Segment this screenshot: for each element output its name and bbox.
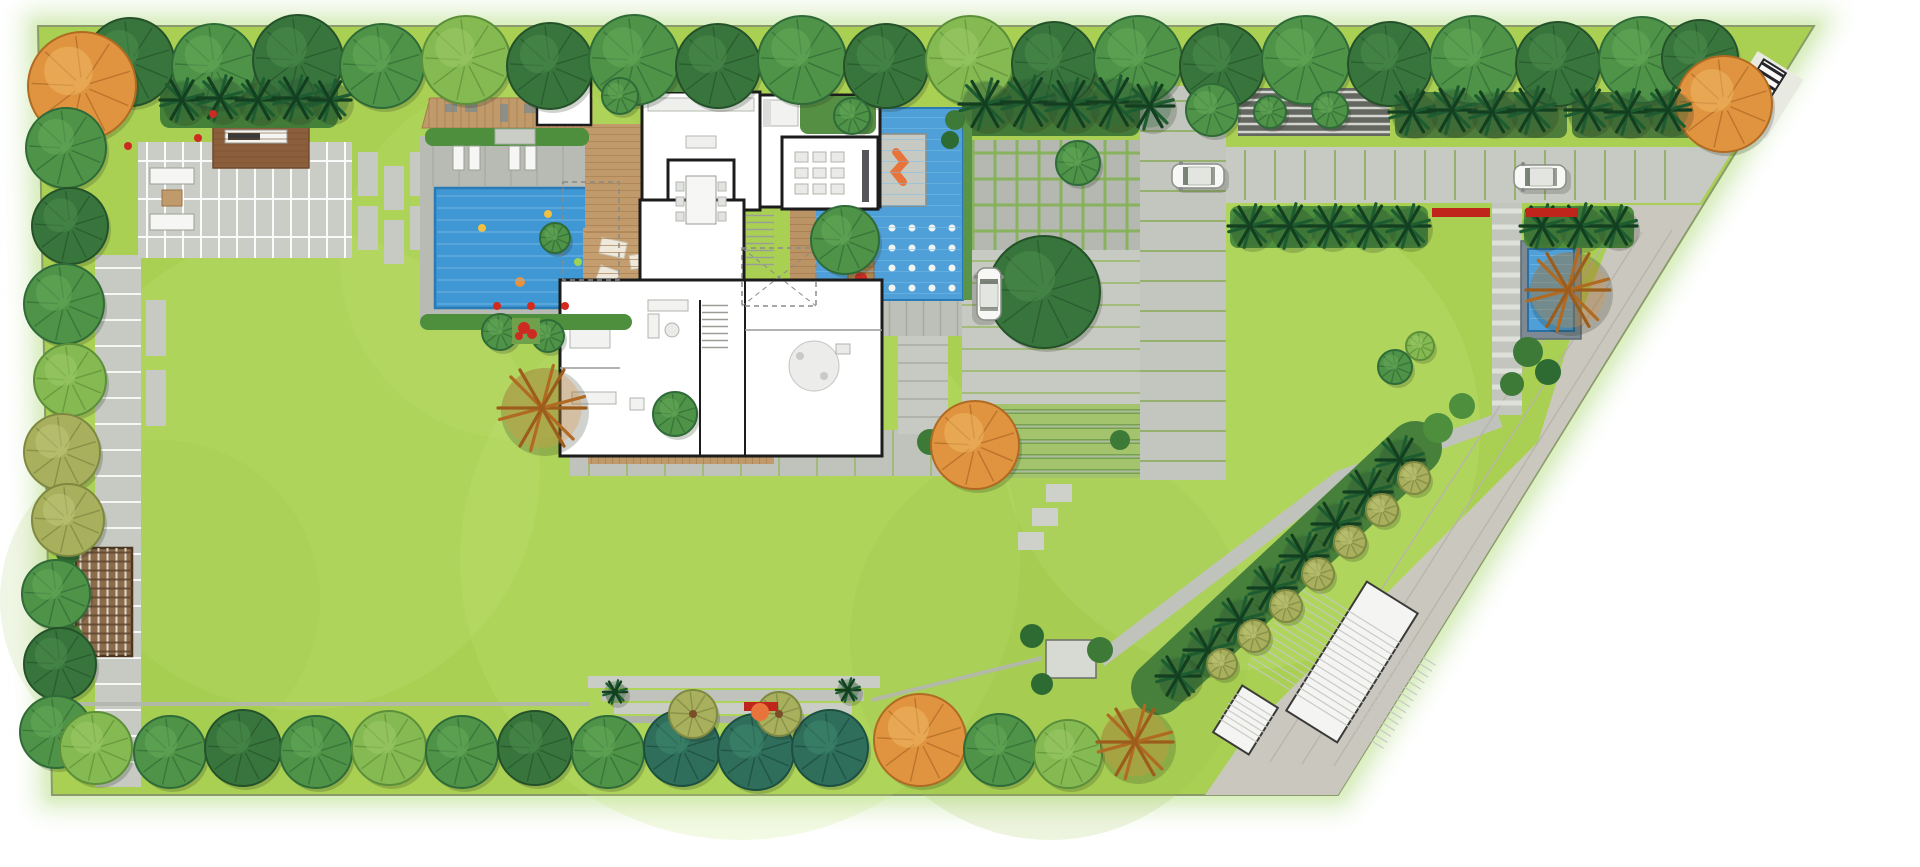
- chair: [676, 212, 684, 221]
- paving: [146, 370, 166, 426]
- shrub: [1535, 359, 1561, 385]
- stepping-stone: [949, 245, 956, 252]
- pool-lounger: [509, 146, 520, 170]
- paving: [384, 166, 404, 210]
- red-sculpture: [527, 329, 537, 339]
- theater-seat: [795, 152, 808, 162]
- car: [1172, 161, 1229, 193]
- car: [972, 268, 1004, 325]
- sculpture: [895, 152, 904, 182]
- theater-seat: [831, 184, 844, 194]
- paving: [358, 206, 378, 250]
- parking-grid: [962, 140, 1140, 250]
- hedge: [963, 108, 972, 300]
- play-table: [836, 344, 850, 354]
- shrub: [1031, 673, 1053, 695]
- shrub: [1087, 637, 1113, 663]
- stepping-stone: [889, 265, 896, 272]
- stepping-stone: [929, 245, 936, 252]
- house-deck: [585, 124, 643, 236]
- pool-lounger: [453, 146, 464, 170]
- gym-steps: [495, 129, 535, 144]
- stepping-stone: [929, 265, 936, 272]
- stepping-stone: [889, 285, 896, 292]
- paving: [1018, 532, 1044, 550]
- stepping-stone: [889, 245, 896, 252]
- pillow: [764, 100, 771, 126]
- garden-sofa: [150, 168, 194, 184]
- chair: [718, 197, 726, 206]
- toy: [820, 372, 828, 380]
- swimmer: [515, 277, 525, 287]
- armchair: [630, 398, 644, 410]
- shrub: [941, 131, 959, 149]
- landscape-site-plan: [0, 0, 1920, 867]
- paving: [384, 220, 404, 264]
- paving: [358, 152, 378, 196]
- pool-torch: [561, 302, 569, 310]
- shrub: [1110, 430, 1130, 450]
- kitchen-island: [686, 136, 716, 148]
- red-sculpture: [515, 332, 523, 340]
- pool-lounger: [525, 146, 536, 170]
- car: [1514, 162, 1571, 194]
- shrub: [945, 110, 965, 130]
- swimmer: [544, 210, 552, 218]
- flower-accent: [124, 142, 132, 150]
- site-plan-page: [0, 0, 1920, 867]
- theater-seat: [813, 168, 826, 178]
- theater-seat: [795, 168, 808, 178]
- stepping-stone: [949, 285, 956, 292]
- shrub: [1513, 337, 1543, 367]
- red-accent-wall: [1526, 208, 1578, 217]
- shrub: [1423, 413, 1453, 443]
- theater-seat: [813, 184, 826, 194]
- paving: [602, 690, 864, 701]
- shrub: [1500, 372, 1524, 396]
- red-accent-wall: [1432, 208, 1490, 217]
- paving: [1032, 508, 1058, 526]
- garden-sofa: [150, 214, 194, 230]
- stepping-stone: [909, 285, 916, 292]
- vertical-road: [1140, 86, 1226, 480]
- stairs: [702, 306, 728, 348]
- garden-table: [162, 190, 182, 206]
- paving: [1046, 484, 1072, 502]
- pool-torch: [527, 302, 535, 310]
- pool-torch: [493, 302, 501, 310]
- toy: [796, 352, 804, 360]
- theater-screen: [862, 150, 869, 202]
- bottom-steps: [588, 676, 880, 688]
- entrance-road: [1226, 147, 1735, 203]
- pool-lounger: [469, 146, 480, 170]
- coffee-table: [665, 323, 679, 337]
- stepping-stone: [949, 265, 956, 272]
- fountain-bowl: [751, 703, 769, 721]
- swimmer: [478, 224, 486, 232]
- paving: [146, 300, 166, 356]
- theater-seat: [831, 152, 844, 162]
- theater-seat: [813, 152, 826, 162]
- sofa: [648, 300, 688, 311]
- round-rug: [789, 341, 839, 391]
- stepping-stone: [909, 265, 916, 272]
- dining-table: [686, 176, 716, 224]
- stepping-stone: [929, 285, 936, 292]
- theater-seat: [831, 168, 844, 178]
- theater-seat: [795, 184, 808, 194]
- flower-accent: [194, 134, 202, 142]
- stepping-stone: [909, 245, 916, 252]
- chair: [676, 182, 684, 191]
- chair: [718, 182, 726, 191]
- shrub: [1020, 624, 1044, 648]
- sofa: [648, 314, 659, 338]
- pool-float: [574, 258, 582, 266]
- flower-accent: [209, 110, 217, 118]
- chair: [718, 212, 726, 221]
- shrub: [1449, 393, 1475, 419]
- chair: [676, 197, 684, 206]
